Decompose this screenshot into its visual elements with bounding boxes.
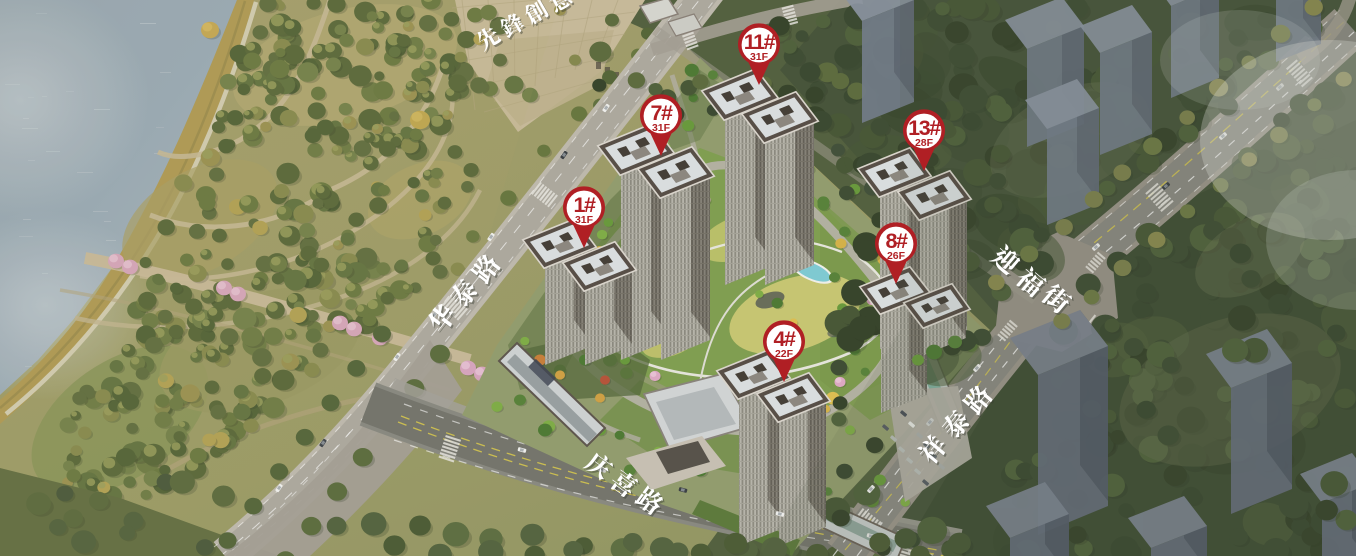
svg-text:22F: 22F xyxy=(775,348,794,360)
svg-text:31F: 31F xyxy=(750,51,769,63)
svg-text:31F: 31F xyxy=(575,214,594,226)
svg-text:28F: 28F xyxy=(915,137,934,149)
svg-text:26F: 26F xyxy=(887,250,906,262)
svg-text:31F: 31F xyxy=(652,122,671,134)
